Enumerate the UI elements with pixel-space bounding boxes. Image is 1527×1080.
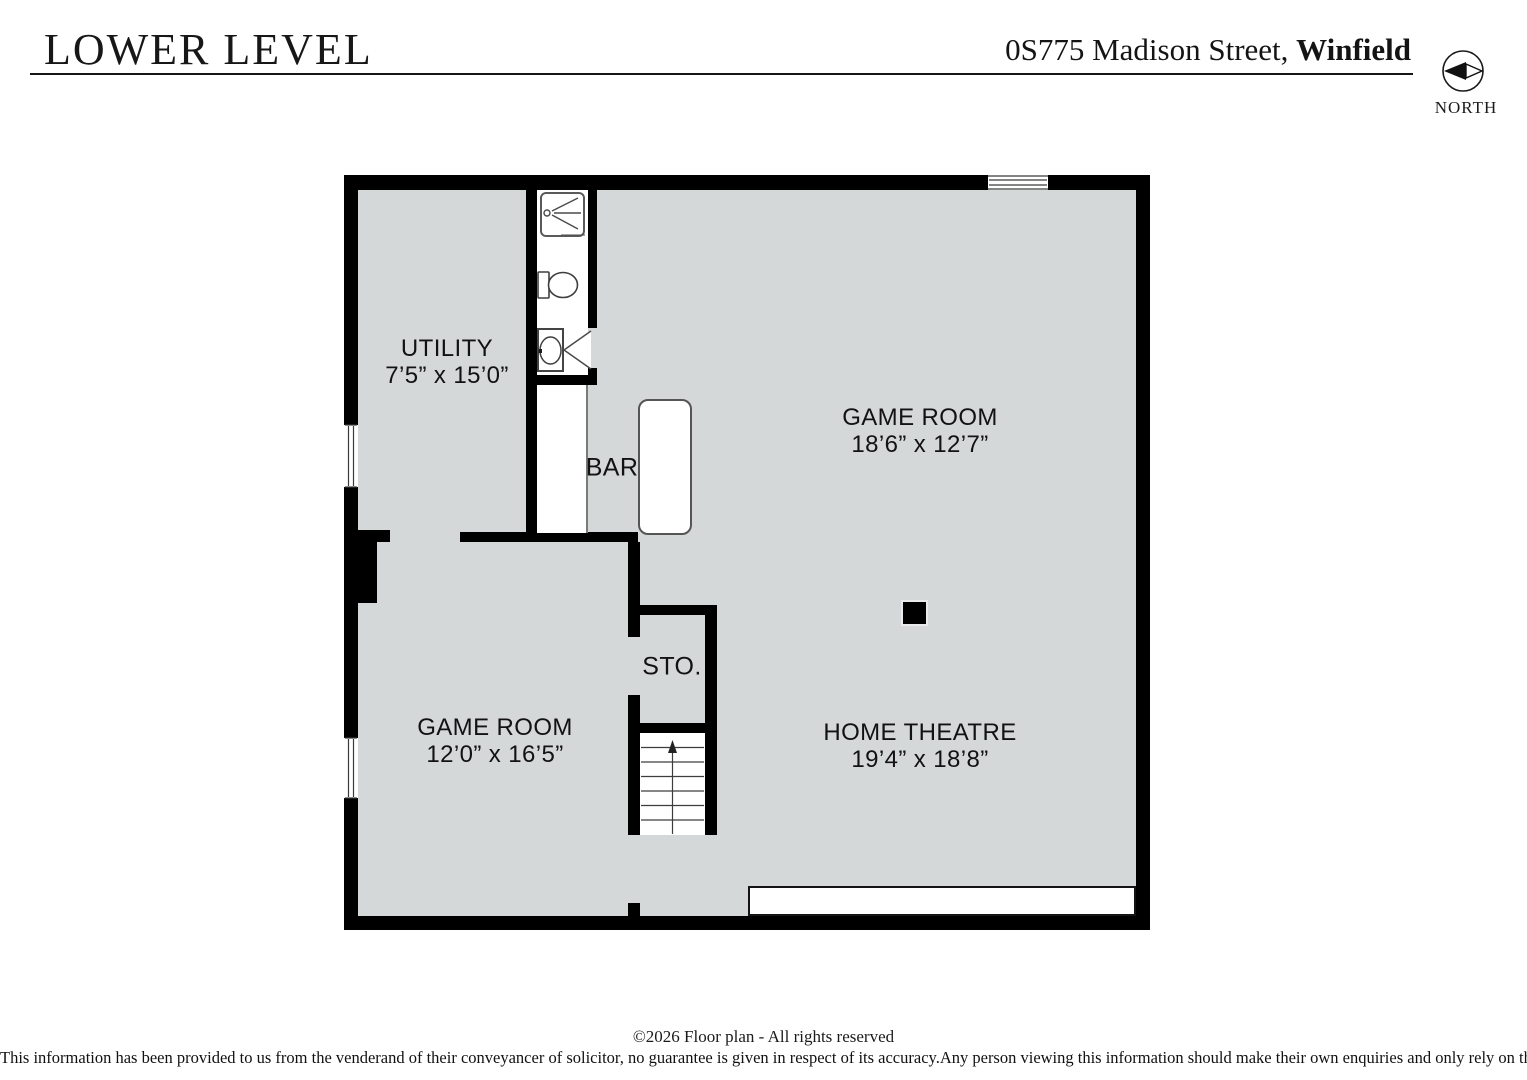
bar-counter xyxy=(537,385,588,533)
room-label-storage: STO. xyxy=(642,654,702,681)
window-left-lower xyxy=(344,738,358,798)
address-street: 0S775 Madison Street, xyxy=(1005,32,1296,67)
wall-bathroom-bottom xyxy=(526,375,597,385)
room-dims: 7’5” x 15’0” xyxy=(385,362,509,389)
copyright-line: ©2026 Floor plan - All rights reserved xyxy=(0,1027,1527,1047)
room-label-utility: UTILITY 7’5” x 15’0” xyxy=(385,335,509,389)
wall-storage-stair-divider xyxy=(628,723,717,733)
wall-utility-bottom-right xyxy=(460,532,638,542)
address-city: Winfield xyxy=(1296,32,1411,67)
wall-utility-bottom-left xyxy=(344,530,390,542)
wall-storage-right xyxy=(705,605,717,835)
window-left-upper xyxy=(344,425,358,487)
wall-right xyxy=(1136,175,1150,930)
property-address: 0S775 Madison Street, Winfield xyxy=(1005,32,1411,68)
room-name: HOME THEATRE xyxy=(823,719,1016,746)
room-dims: 19’4” x 18’8” xyxy=(823,746,1016,773)
sink-vanity xyxy=(537,328,564,372)
shower xyxy=(540,192,585,237)
page-title: LOWER LEVEL xyxy=(44,24,373,75)
chimney-block xyxy=(344,542,377,603)
floor-area xyxy=(358,190,1136,916)
header-divider xyxy=(30,73,1413,75)
wall-bottom xyxy=(344,916,1150,930)
disclaimer-line: This information has been provided to us… xyxy=(0,1048,1527,1068)
wall-stair-left-upper xyxy=(628,542,640,637)
north-compass-icon xyxy=(1436,45,1496,97)
wall-bathroom-left xyxy=(526,188,537,542)
room-label-home-theatre: HOME THEATRE 19’4” x 18’8” xyxy=(823,719,1016,773)
compass-label: NORTH xyxy=(1428,98,1504,118)
wall-bottom-stub xyxy=(628,903,640,916)
media-unit xyxy=(748,886,1136,916)
room-label-bar: BAR xyxy=(586,455,639,482)
room-name: GAME ROOM xyxy=(417,714,573,741)
room-name: UTILITY xyxy=(385,335,509,362)
room-name: GAME ROOM xyxy=(842,404,998,431)
wall-stair-left-lower xyxy=(628,695,640,835)
floor-plan-page: LOWER LEVEL 0S775 Madison Street, Winfie… xyxy=(0,0,1527,1080)
stairs-floor xyxy=(640,733,706,835)
room-label-game-room-upper: GAME ROOM 18’6” x 12’7” xyxy=(842,404,998,458)
bar-island-counter xyxy=(638,399,692,535)
window-top xyxy=(988,175,1048,190)
room-dims: 18’6” x 12’7” xyxy=(842,431,998,458)
room-dims: 12’0” x 16’5” xyxy=(417,741,573,768)
room-label-game-room-lower: GAME ROOM 12’0” x 16’5” xyxy=(417,714,573,768)
wall-bathroom-right-upper xyxy=(588,188,597,328)
support-column xyxy=(903,602,926,624)
